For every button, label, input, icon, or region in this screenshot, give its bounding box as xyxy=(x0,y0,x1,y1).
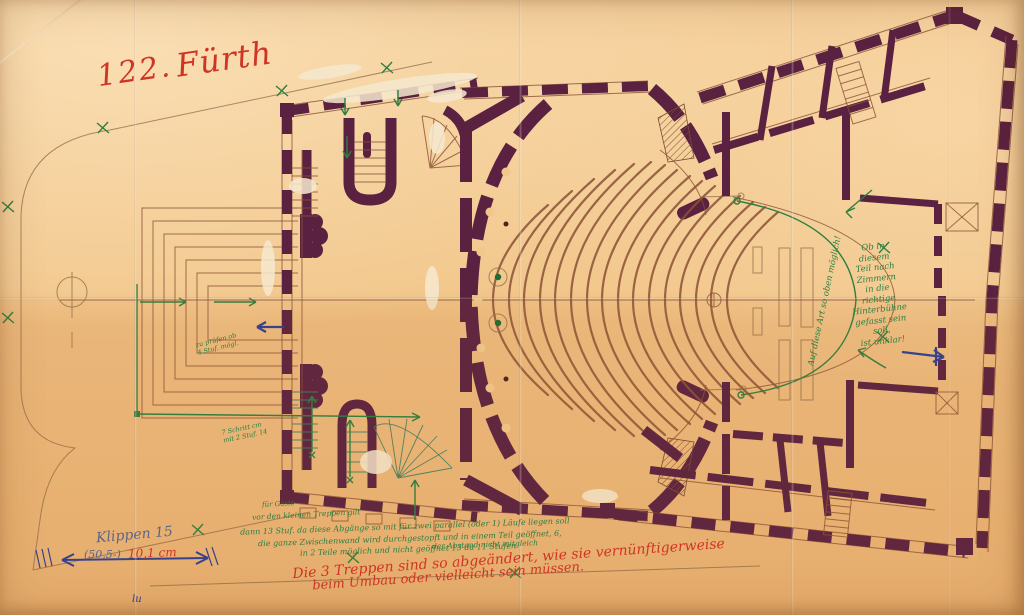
scanned-plan-sheet: .wall{stroke:#5a2240;fill:none;} .thin{s… xyxy=(0,0,1024,615)
u-stair-upper xyxy=(349,118,391,200)
blue-arrow-left xyxy=(257,322,284,332)
stage-floor-markings xyxy=(142,208,298,418)
blue-ink-marks xyxy=(36,322,944,568)
pin-dot xyxy=(504,222,509,227)
green-dot xyxy=(495,274,501,280)
whiteout-patches xyxy=(261,61,618,503)
light-shaft xyxy=(946,203,978,231)
shaft-crossed xyxy=(936,392,958,414)
blue-arrow-right xyxy=(902,347,944,366)
stage-staircases xyxy=(292,110,468,488)
pin-dot xyxy=(504,377,509,382)
floor-plan-drawing: .wall{stroke:#5a2240;fill:none;} .thin{s… xyxy=(0,0,1024,615)
green-dot xyxy=(495,320,501,326)
